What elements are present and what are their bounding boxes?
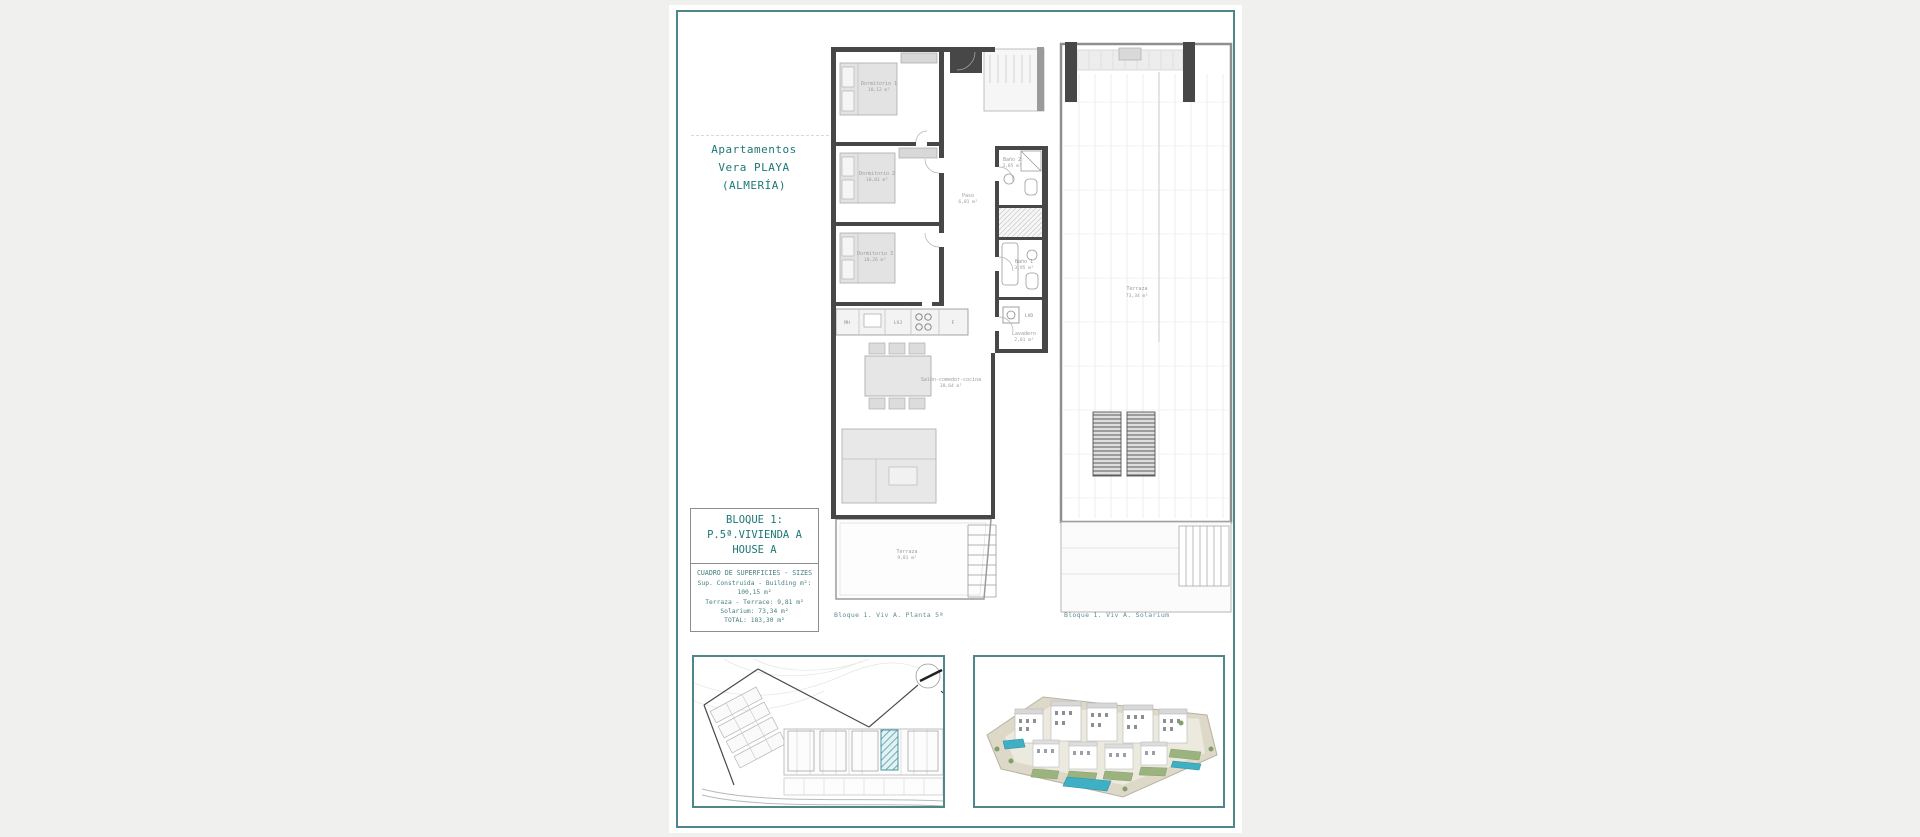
- unit-block-label: BLOQUE 1:: [693, 513, 816, 528]
- label-dormitorio2-area: 10,01 m²: [866, 177, 888, 183]
- drawing-sheet-canvas: Apartamentos Vera PLAYA (ALMERÍA): [0, 0, 1920, 837]
- floor-plan-drawing: Dormitorio 1 10,12 m² Dormitorio 2 10,01…: [827, 47, 1048, 612]
- label-salon-area: 30,64 m²: [940, 383, 962, 389]
- label-appliance-mh: MH: [844, 320, 850, 326]
- wardrobe-dormitorio1: [901, 53, 937, 63]
- dimension-leader-line: [691, 135, 829, 136]
- project-title-line3: (ALMERÍA): [687, 177, 821, 195]
- highlighted-unit: [881, 730, 898, 770]
- label-paso-area: 6,01 m²: [958, 199, 977, 205]
- label-dormitorio3: Dormitorio 3: [857, 251, 893, 257]
- lower-unit-row: [784, 778, 943, 795]
- project-title-line1: Apartamentos: [687, 141, 821, 159]
- site-plan-thumbnail: [692, 655, 945, 808]
- label-solarium-terraza-area: 73,34 m²: [1126, 293, 1148, 299]
- label-bano2: Baño 2: [1003, 157, 1021, 163]
- project-title-line2: Vera PLAYA: [687, 159, 821, 177]
- label-lavadero-area: 2,01 m²: [1014, 337, 1033, 343]
- floor-plan-caption: Bloque 1. Viv A. Planta 5ª: [834, 611, 944, 619]
- unit-floor-label: P.5ª.VIVIENDA A: [693, 528, 816, 543]
- unit-id-block: BLOQUE 1: P.5ª.VIVIENDA A HOUSE A: [691, 509, 818, 564]
- label-dormitorio3-area: 10,26 m²: [864, 257, 886, 263]
- unit-info-box: BLOQUE 1: P.5ª.VIVIENDA A HOUSE A CUADRO…: [690, 508, 819, 632]
- solarium-plan-caption: Bloque 1. Viv A. Solarium: [1064, 611, 1169, 619]
- label-dormitorio1: Dormitorio 1: [861, 81, 897, 87]
- label-bano1-area: 3,95 m²: [1014, 265, 1033, 271]
- pergola-post-left: [1065, 42, 1077, 102]
- wardrobe-dormitorio2: [899, 148, 937, 158]
- sizes-row-built: Sup. Construida - Building m²: 100,15 m²: [693, 579, 816, 597]
- project-title: Apartamentos Vera PLAYA (ALMERÍA): [687, 141, 821, 195]
- label-salon: Salón-comedor-cocina: [921, 376, 981, 383]
- label-terraza: Terraza: [896, 549, 917, 555]
- shaft: [999, 208, 1042, 237]
- label-bano1: Baño 1: [1015, 259, 1033, 265]
- label-paso: Paso: [962, 193, 974, 199]
- sizes-row-terrace: Terraza - Terrace: 9,81 m²: [693, 598, 816, 607]
- label-appliance-f: F: [952, 320, 955, 326]
- sizes-row-solarium: Solarium: 73,34 m²: [693, 607, 816, 616]
- sink: [864, 314, 881, 327]
- washer: [1003, 307, 1019, 323]
- label-dormitorio2: Dormitorio 2: [859, 171, 895, 177]
- label-terraza-area: 9,81 m²: [897, 555, 916, 561]
- label-appliance-lvj: LVJ: [894, 320, 903, 326]
- plan-sheet-page: Apartamentos Vera PLAYA (ALMERÍA): [669, 5, 1242, 833]
- sofa: [842, 429, 936, 503]
- main-unit-row: [784, 729, 943, 775]
- solarium-stairs: [1179, 526, 1229, 586]
- pergola-post-right: [1183, 42, 1195, 102]
- coffee-table: [889, 467, 917, 485]
- render-thumbnail: [973, 655, 1225, 808]
- sizes-row-total: TOTAL: 183,30 m²: [693, 616, 816, 625]
- label-bano2-area: 3,85 m²: [1002, 163, 1021, 169]
- stair-landing: [950, 47, 1044, 111]
- label-dormitorio1-area: 10,12 m²: [868, 87, 890, 93]
- label-lavadero: Lavadero: [1012, 331, 1036, 337]
- dining-table: [865, 343, 931, 409]
- label-solarium-terraza: Terraza: [1126, 286, 1147, 292]
- sizes-table: CUADRO DE SUPERFICIES - SIZES Sup. Const…: [691, 564, 818, 631]
- left-unit-cluster: [710, 687, 786, 768]
- unit-house-label: HOUSE A: [693, 543, 816, 558]
- label-appliance-lvd: LVD: [1025, 313, 1034, 319]
- sizes-table-header: CUADRO DE SUPERFICIES - SIZES: [693, 569, 816, 578]
- lower-roof-zone: [1061, 522, 1231, 612]
- left-pool: [1003, 739, 1025, 749]
- solarium-plan-drawing: Terraza 73,34 m²: [1059, 42, 1234, 617]
